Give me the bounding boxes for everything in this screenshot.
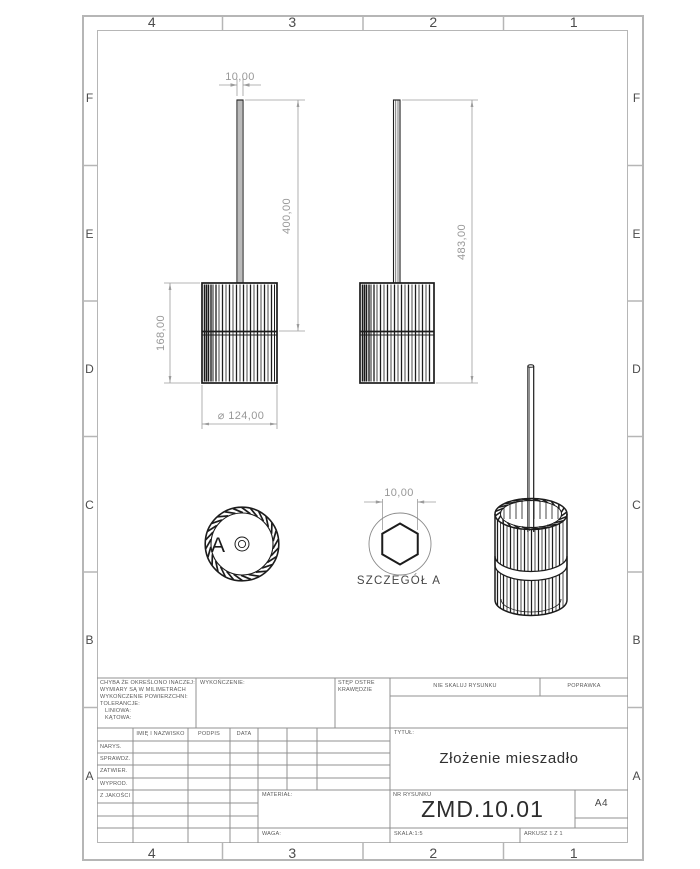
dim-shaft-length: 400,00 (281, 198, 293, 234)
column-header-date: DATA (230, 731, 258, 738)
detail-view: 10,00 SZCZEGÓŁ A (357, 487, 441, 587)
paper-size: A4 (575, 798, 628, 809)
row-label-production: WYPROD. (100, 781, 128, 788)
do-not-scale-label: NIE SKALUJ RYSUNKU (390, 683, 540, 690)
drawing-title: Złożenie mieszadło (390, 750, 628, 767)
detail-dimension-arrows (376, 500, 424, 503)
row-label-approved: ZATWIER. (100, 768, 127, 775)
drawing-canvas: 10,00 400,00 168,00 ⌀ 124,00 483,0 (0, 0, 700, 869)
top-view: A (205, 507, 279, 581)
row-label-quality: Z JAKOŚCI (100, 793, 130, 800)
tolerance-note-line: CHYBA ŻE OKREŚLONO INACZEJ: (100, 680, 195, 687)
weight-label: WAGA: (262, 831, 281, 838)
dim-drum-height: 168,00 (155, 315, 167, 351)
dim-shaft-diameter: 10,00 (225, 71, 255, 83)
sheet-number-label: ARKUSZ 1 Z 1 (524, 831, 563, 838)
tolerance-note-line: TOLERANCJE: (100, 701, 140, 708)
side-view: 483,00 (360, 100, 478, 383)
scale-label: SKALA:1:5 (394, 831, 423, 838)
hex-socket (382, 524, 418, 565)
title-label: TYTUŁ: (394, 730, 414, 737)
material-label: MATERIAŁ: (262, 792, 292, 799)
drawing-sheet: 44332211FFEEDDCCBBAA (0, 0, 700, 869)
dim-drum-diameter: ⌀ 124,00 (218, 410, 265, 422)
tolerance-note-line: KĄTOWA: (105, 715, 131, 722)
dim-hex-across-flats: 10,00 (384, 487, 414, 499)
drawing-number: ZMD.10.01 (390, 796, 575, 823)
finish-label: WYKOŃCZENIE: (200, 680, 245, 687)
row-label-checked: SPRAWDZ. (100, 756, 130, 763)
tolerance-note-line: LINIOWA: (105, 708, 131, 715)
detail-marker-label: A (211, 534, 225, 557)
isometric-view (495, 365, 567, 616)
front-view: 10,00 400,00 168,00 ⌀ 124,00 (155, 71, 305, 429)
column-header-name: IMIĘ I NAZWISKO (133, 731, 188, 738)
tolerance-note-line: WYKOŃCZENIE POWIERZCHNI: (100, 694, 188, 701)
edge-note-line: STĘP OSTRE (338, 680, 375, 687)
revision-label: POPRAWKA (540, 683, 628, 690)
dim-overall-height: 483,00 (456, 224, 468, 260)
row-label-drawn: NARYS. (100, 744, 122, 751)
detail-caption: SZCZEGÓŁ A (357, 574, 441, 587)
edge-note-line: KRAWĘDZIE (338, 687, 372, 694)
tolerance-note-line: WYMIARY SĄ W MILIMETRACH (100, 687, 186, 694)
column-header-signature: PODPIS (188, 731, 230, 738)
